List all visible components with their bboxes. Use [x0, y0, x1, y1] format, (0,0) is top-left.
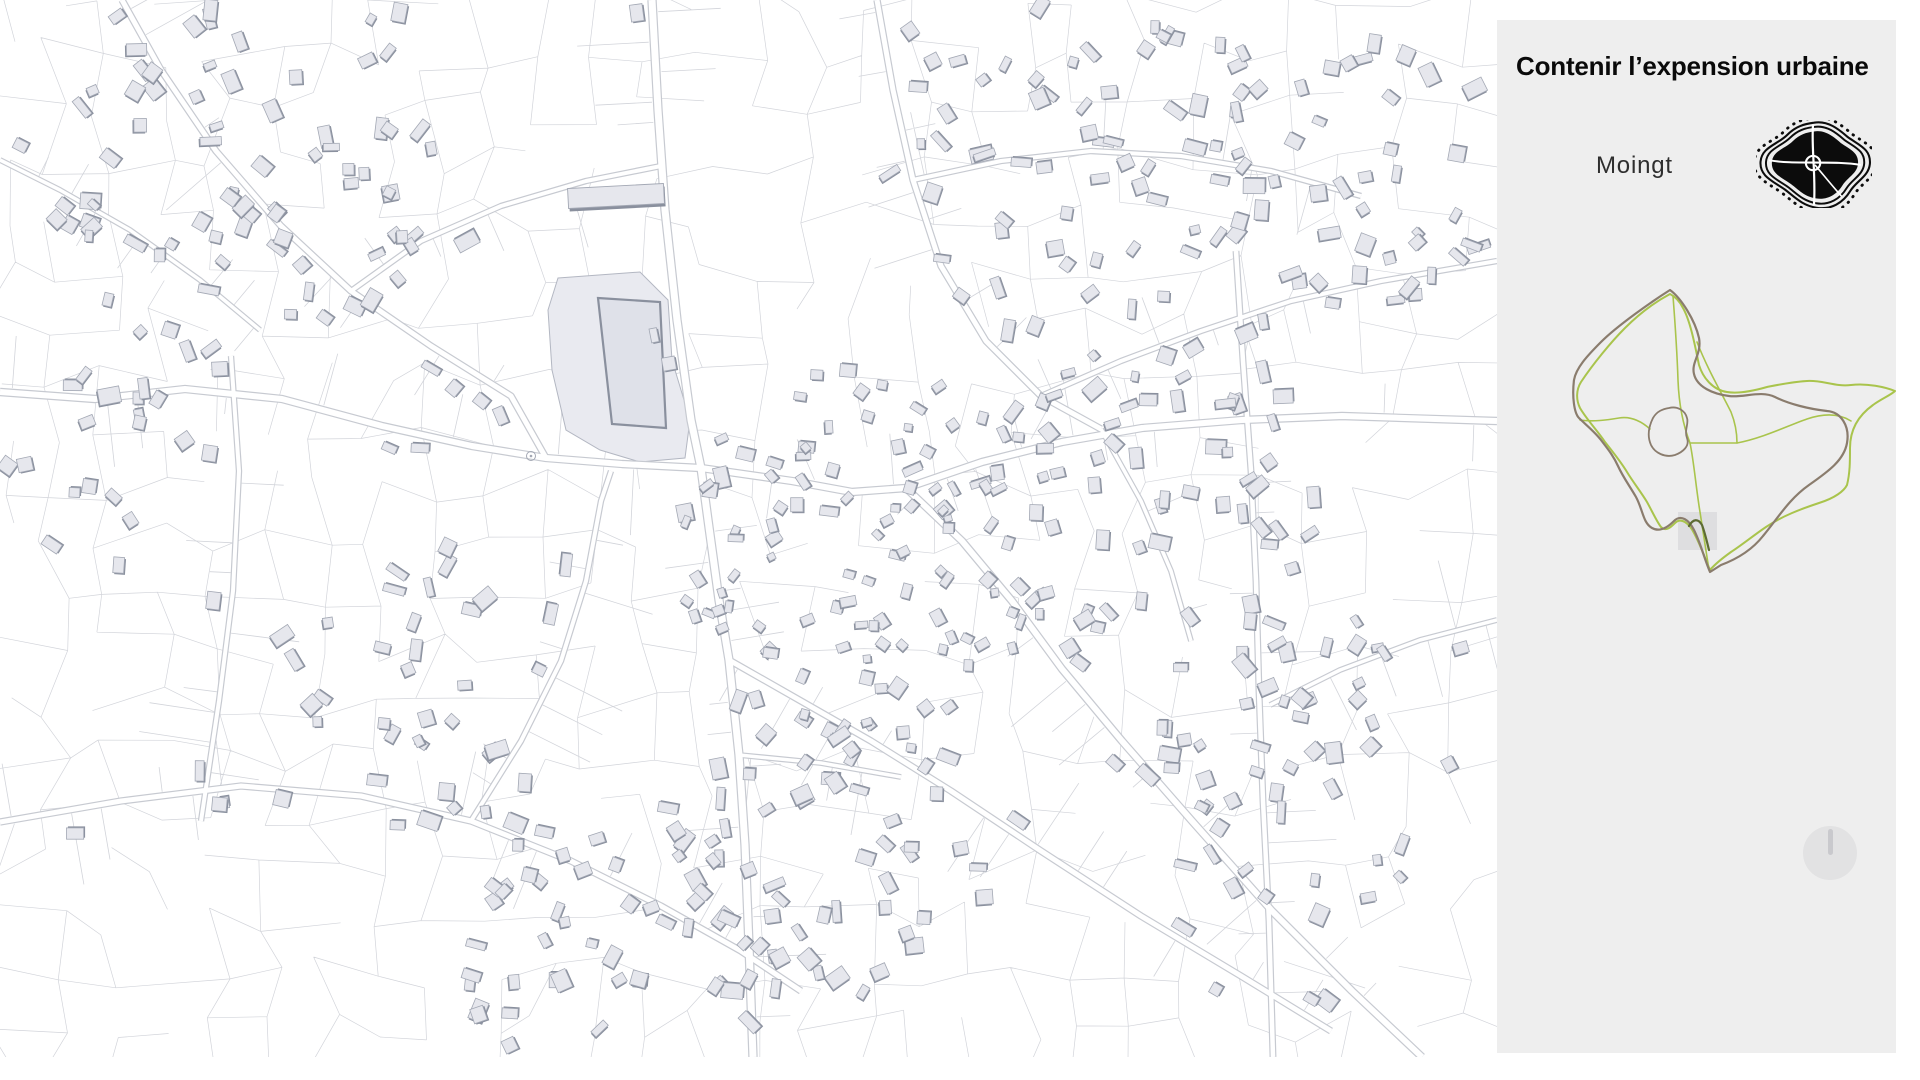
- commune-outline-minimap[interactable]: [1563, 280, 1908, 580]
- timeline-dial-button[interactable]: [1803, 826, 1857, 880]
- sidebar: Contenir l’expension urbaine Moingt: [1497, 20, 1896, 1053]
- commune-label: Moingt: [1596, 152, 1673, 180]
- cadastral-map-drawing: [0, 0, 1497, 1057]
- dial-pointer-icon: [1828, 829, 1833, 855]
- page-title: Contenir l’expension urbaine: [1516, 50, 1886, 82]
- map-canvas[interactable]: [0, 0, 1497, 1080]
- commune-row: Moingt: [1497, 116, 1896, 212]
- commune-blob-icon: [1756, 120, 1872, 208]
